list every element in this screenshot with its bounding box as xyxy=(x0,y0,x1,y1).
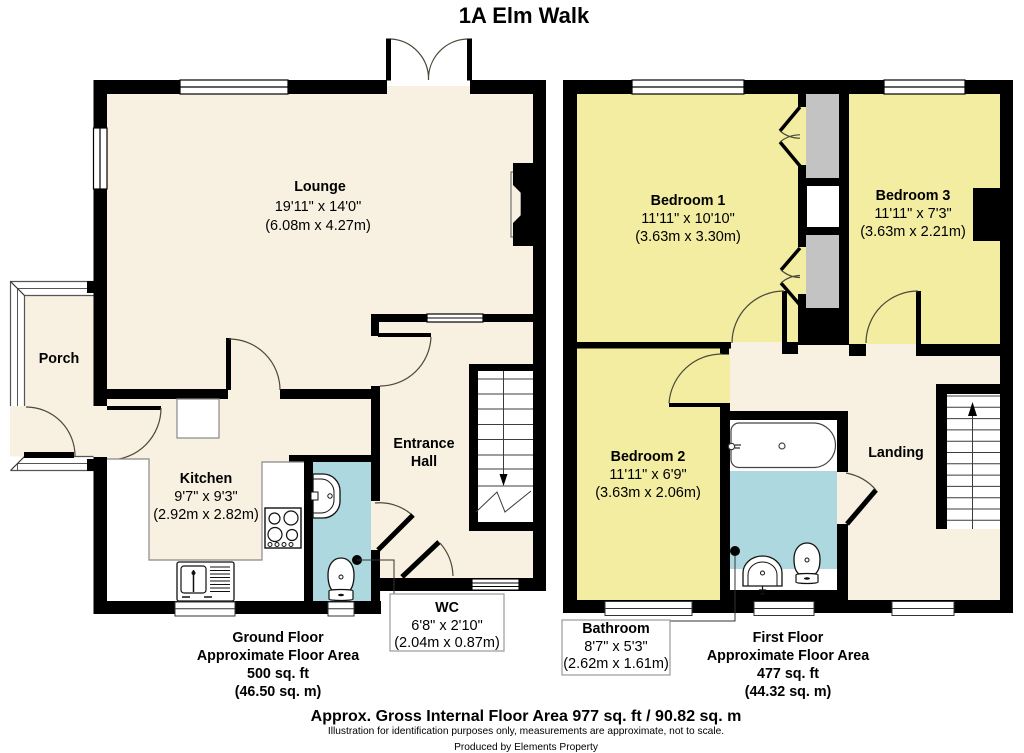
svg-text:Approximate Floor Area: Approximate Floor Area xyxy=(197,648,360,664)
svg-text:11'11" x 10'10": 11'11" x 10'10" xyxy=(641,211,735,227)
svg-text:Lounge: Lounge xyxy=(294,179,346,195)
svg-text:Produced by Elements Property: Produced by Elements Property xyxy=(454,742,599,753)
svg-text:Approximate Floor Area: Approximate Floor Area xyxy=(707,648,870,664)
svg-text:Entrance: Entrance xyxy=(393,436,454,452)
svg-text:Bedroom 2: Bedroom 2 xyxy=(611,449,686,465)
svg-text:(3.63m x 2.21m): (3.63m x 2.21m) xyxy=(860,224,966,240)
svg-text:Bedroom 3: Bedroom 3 xyxy=(876,188,951,204)
svg-text:500 sq. ft: 500 sq. ft xyxy=(247,666,309,682)
svg-text:(6.08m x 4.27m): (6.08m x 4.27m) xyxy=(265,218,371,234)
svg-text:(3.63m x 2.06m): (3.63m x 2.06m) xyxy=(595,485,701,501)
svg-text:6'8" x 2'10": 6'8" x 2'10" xyxy=(411,618,482,634)
svg-text:(2.92m x 2.82m): (2.92m x 2.82m) xyxy=(153,507,259,523)
svg-text:(46.50 sq. m): (46.50 sq. m) xyxy=(235,684,322,700)
svg-text:(44.32 sq. m): (44.32 sq. m) xyxy=(745,684,832,700)
svg-text:Illustration for identificatio: Illustration for identification purposes… xyxy=(328,726,724,737)
svg-text:Landing: Landing xyxy=(868,445,924,461)
svg-text:WC: WC xyxy=(435,600,459,616)
svg-text:(2.62m x 1.61m): (2.62m x 1.61m) xyxy=(563,656,669,672)
svg-text:Ground Floor: Ground Floor xyxy=(232,630,324,646)
svg-text:9'7" x 9'3": 9'7" x 9'3" xyxy=(174,489,237,505)
svg-text:Bedroom 1: Bedroom 1 xyxy=(651,193,726,209)
svg-text:1A Elm Walk: 1A Elm Walk xyxy=(459,3,590,28)
svg-text:Porch: Porch xyxy=(39,351,80,367)
svg-text:477 sq. ft: 477 sq. ft xyxy=(757,666,819,682)
svg-text:(3.63m x 3.30m): (3.63m x 3.30m) xyxy=(635,229,741,245)
svg-text:11'11" x 6'9": 11'11" x 6'9" xyxy=(609,467,686,483)
svg-text:Bathroom: Bathroom xyxy=(582,621,650,637)
svg-text:(2.04m x 0.87m): (2.04m x 0.87m) xyxy=(394,635,500,651)
svg-text:First Floor: First Floor xyxy=(753,630,824,646)
svg-text:Approx. Gross Internal Floor A: Approx. Gross Internal Floor Area 977 sq… xyxy=(311,708,742,725)
svg-text:8'7" x 5'3": 8'7" x 5'3" xyxy=(584,639,647,655)
svg-text:Kitchen: Kitchen xyxy=(180,471,232,487)
svg-text:11'11" x 7'3": 11'11" x 7'3" xyxy=(874,206,951,222)
svg-text:Hall: Hall xyxy=(411,454,437,470)
svg-text:19'11" x 14'0": 19'11" x 14'0" xyxy=(275,199,362,215)
